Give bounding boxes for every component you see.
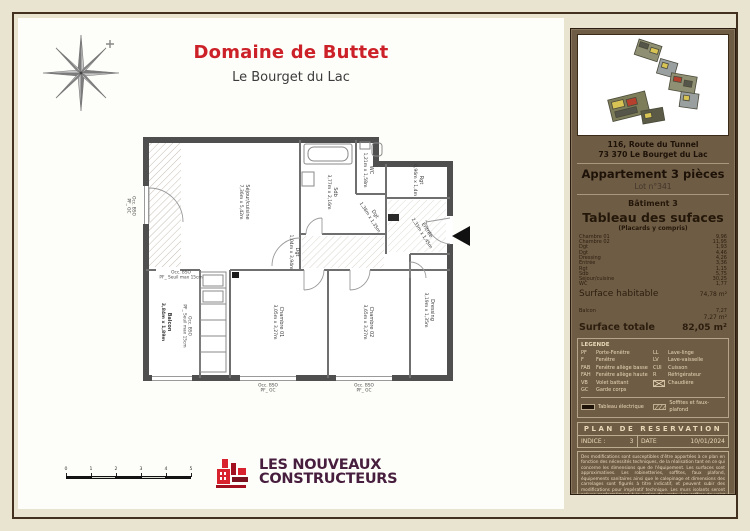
legend: LEGENDE PFPorte-Fenêtre FFenêtre FABFenê… [577, 338, 729, 418]
window-note-chambre01: Occ. BSO PF_ GC [258, 384, 278, 395]
surface-habitable-row: Surface habitable 74,78 m² [577, 289, 729, 299]
surface-table-subtitle: (Placards y compris) [577, 225, 729, 232]
room-label-wc: WC 1,21m x 1,58m [362, 152, 374, 187]
drawing-area: Domaine de Buttet Le Bourget du Lac [18, 18, 564, 509]
builder-logo: LES NOUVEAUX CONSTRUCTEURS [214, 456, 397, 490]
date-value: 10/01/2024 [676, 436, 728, 447]
room-label-sdb: Sdb 3,77m x 2,16m [326, 174, 338, 209]
room-label-dgt2: Dgt 1,04m x 3,94m [288, 234, 300, 269]
legend-item-electrical: Tableau électrique [581, 400, 653, 415]
window-note-chambre02: Occ. BSO PF_ GC [354, 384, 374, 395]
legend-item: LLLave-linge [653, 350, 725, 358]
reservation-plan-banner: PLAN DE RESERVATION [577, 422, 729, 436]
surface-row: WC1,77 [577, 282, 729, 287]
legend-item: FFenêtre [581, 357, 653, 365]
electrical-board-icon [581, 404, 595, 410]
legend-title: LEGENDE [581, 341, 725, 349]
exterior-surface-total: 7,27 m² [577, 314, 729, 321]
room-label-chambre02: Chambre 02 3,65m x 3,27m [362, 304, 374, 339]
site-plan-buildings [578, 35, 729, 133]
builder-logo-text: LES NOUVEAUX CONSTRUCTEURS [259, 459, 397, 487]
boiler-icon [653, 380, 668, 391]
indice-value: 3 [626, 436, 637, 447]
building-number: Bâtiment 3 [577, 199, 729, 208]
title-block-panel: 116, Route du Tunnel 73 370 Le Bourget d… [570, 28, 736, 495]
surface-total-row: Surface totale 82,05 m² [577, 322, 729, 333]
legend-item-chaudiere: Chaudière [653, 380, 725, 391]
surface-table-title: Tableau des sufaces [577, 210, 729, 225]
soffit-hatch-icon [653, 404, 666, 410]
surface-table: Bâtiment 3 Tableau des sufaces (Placards… [577, 199, 729, 333]
project-title: Domaine de Buttet [18, 42, 564, 63]
balcony-threshold-note: Occ. BSO PF_ Seuil max 15cm [159, 271, 202, 282]
legend-item: PFPorte-Fenêtre [581, 350, 653, 358]
floor-plan: Séjour/cuisine 7,36m x 5,42m Sdb 3,77m x… [136, 130, 476, 398]
room-label-balcon: Balcon 3,84m x 1,89m [160, 303, 172, 341]
apartment-type: Appartement 3 pièces [577, 167, 729, 181]
revision-row: INDICE : 3 DATE 10/01/2024 [577, 436, 729, 448]
sheet-header: Domaine de Buttet Le Bourget du Lac [18, 42, 564, 85]
floor-plan-drawing [136, 130, 476, 398]
room-label-rgt: Rgt 0,96m x 1,4m [412, 164, 424, 196]
room-label-dressing: Dressing 3,19m x 1,35m [423, 292, 435, 327]
legend-item: FAHFenêtre allège haute [581, 372, 653, 380]
legal-disclaimer: Des modifications sont susceptibles d'êt… [577, 451, 729, 495]
room-label-sejour: Séjour/cuisine 7,36m x 5,42m [238, 184, 250, 219]
entrance-arrow-icon [452, 226, 470, 246]
indice-label: INDICE : [578, 436, 626, 447]
scale-bar: 0 1 2 3 4 5 [66, 470, 196, 484]
builder-logo-icon [214, 456, 252, 490]
lot-number: Lot n°341 [577, 182, 729, 191]
legend-item: VBVolet battant [581, 380, 653, 388]
electrical-panel-symbol [232, 272, 239, 278]
window-note-left: Occ. BSO PF_ GC [125, 196, 136, 216]
room-label-chambre01: Chambre 01 3,05m x 3,27m [272, 304, 284, 339]
project-location: Le Bourget du Lac [18, 70, 564, 85]
legend-item-soffites: Soffites et faux-plafond [653, 400, 725, 415]
legend-item: LVLave-vaisselle [653, 357, 725, 365]
site-plan-map [577, 34, 729, 136]
sheet-frame: Domaine de Buttet Le Bourget du Lac [12, 12, 738, 519]
legend-item: RRéfrigérateur [653, 372, 725, 380]
legend-item: GCGarde corps [581, 387, 653, 395]
balcony-threshold-note-vertical: Occ. BSO PF_ Seuil max 15cm [181, 304, 192, 347]
project-address: 116, Route du Tunnel 73 370 Le Bourget d… [577, 140, 729, 160]
date-label: DATE [637, 436, 676, 447]
